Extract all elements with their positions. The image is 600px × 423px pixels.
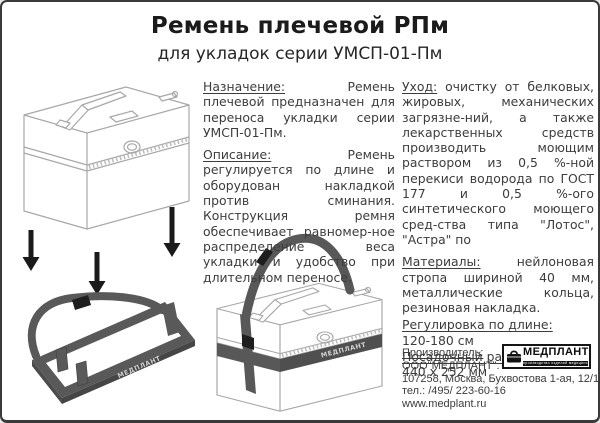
manufacturer-address: 107258, Москва, Бухвостова 1-ая, 12/11 (402, 373, 594, 386)
purpose-paragraph: Назначение: Ремень плечевой предназначен… (203, 79, 395, 140)
manufacturer-phone: тел.: /495/ 223-60-16 (402, 385, 594, 398)
description-label: Описание: (203, 147, 271, 162)
manufacturer-website: www.medplant.ru (402, 398, 594, 411)
medplant-logo: МЕДПЛАНТ производство изделий медицинско… (502, 344, 591, 369)
purpose-label: Назначение: (203, 79, 285, 94)
leaflet-page: Ремень плечевой РПм для укладок серии УМ… (0, 0, 600, 423)
description-text: Ремень регулируется по длине и оборудова… (203, 147, 395, 284)
care-text: очистку от белковых, жировых, механическ… (402, 79, 594, 247)
page-title: Ремень плечевой РПм (2, 13, 598, 39)
strap-frame-drawing: МЕДПЛАНТ (32, 295, 195, 404)
page-subtitle: для укладок серии УМСП-01-Пм (2, 44, 598, 64)
care-label: Уход: (402, 79, 437, 94)
materials-paragraph: Материалы: нейлоновая стропа шириной 40 … (402, 254, 594, 315)
description-paragraph: Описание: Ремень регулируется по длине и… (203, 147, 395, 285)
logo-tagline: производство изделий медицинского назнач… (523, 361, 588, 366)
materials-label: Материалы: (402, 254, 481, 269)
column-middle: Назначение: Ремень плечевой предназначен… (203, 79, 395, 292)
length-adjustment-label: Регулировка по длине: (402, 317, 594, 332)
arrow-down-icon (89, 252, 106, 295)
care-paragraph: Уход: очистку от белковых, жировых, меха… (402, 79, 594, 247)
arrow-down-icon (23, 230, 40, 271)
case-drawing-top (24, 87, 189, 229)
arrow-down-icon (164, 207, 181, 257)
logo-name: МЕДПЛАНТ (523, 347, 588, 358)
figure-case-and-frame: МЕДПЛАНТ (10, 80, 200, 422)
medplant-case-icon (505, 347, 523, 366)
column-right: Уход: очистку от белковых, жировых, меха… (402, 79, 594, 381)
